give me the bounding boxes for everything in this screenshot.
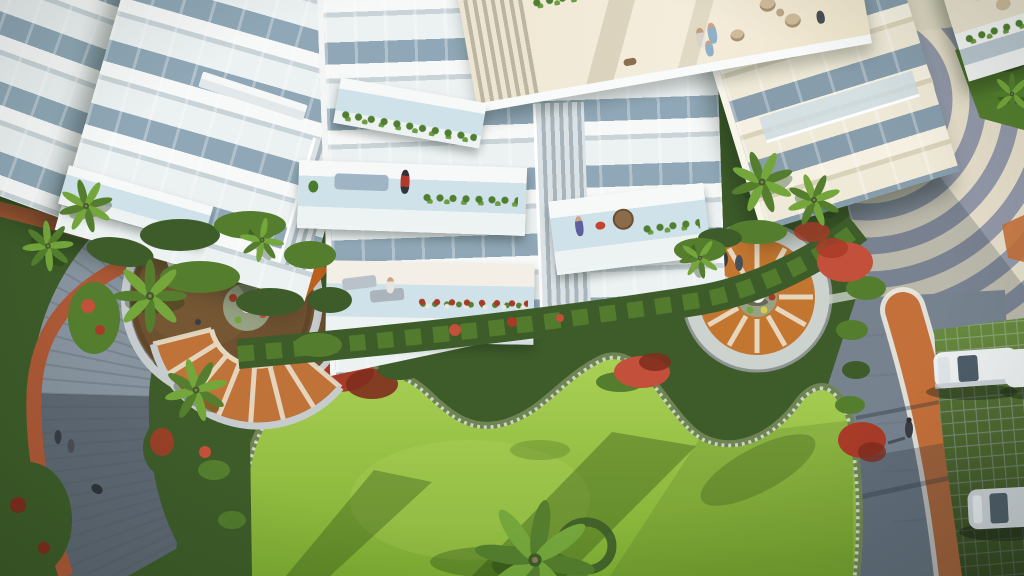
foreground-layer	[0, 0, 1024, 576]
aerial-site-render	[0, 0, 1024, 576]
